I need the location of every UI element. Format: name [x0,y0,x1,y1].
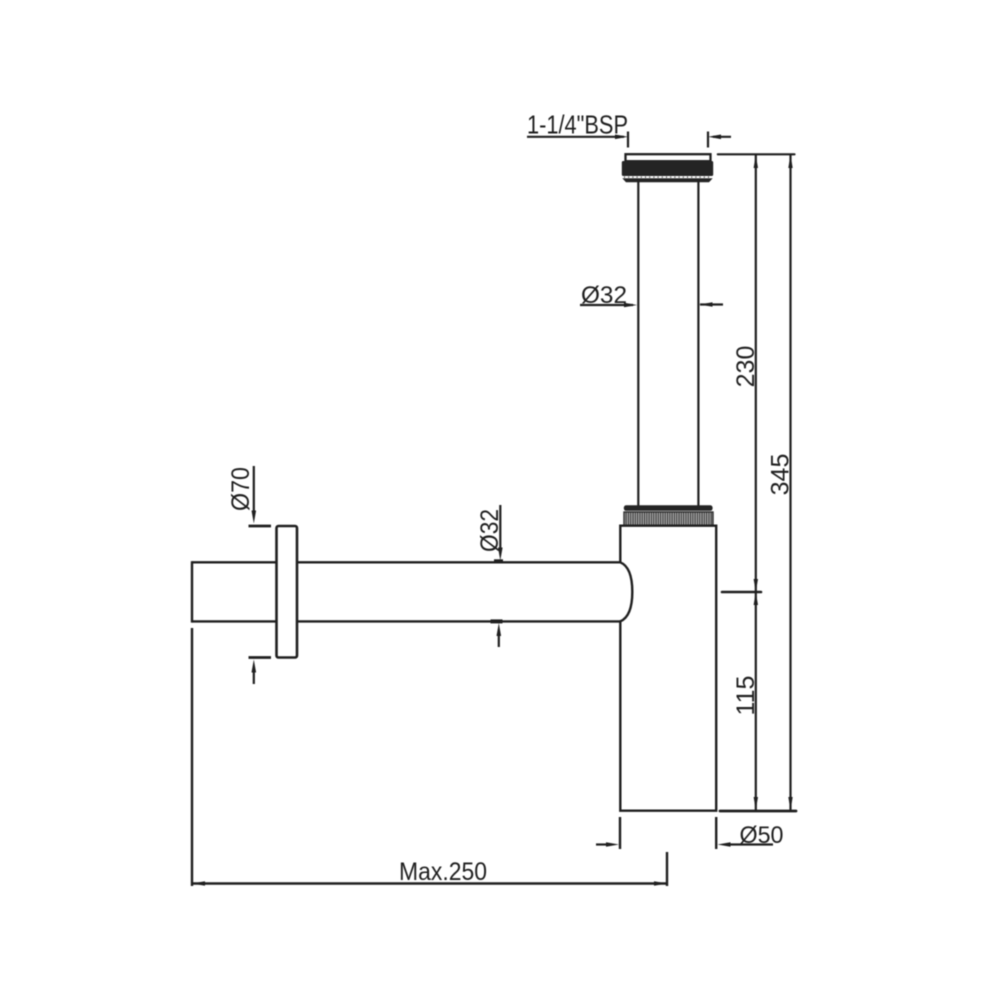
svg-text:230: 230 [732,346,760,388]
svg-text:345: 345 [767,454,795,496]
svg-text:115: 115 [732,676,760,716]
svg-text:Ø50: Ø50 [740,822,784,849]
svg-text:1-1/4"BSP: 1-1/4"BSP [527,110,628,140]
svg-text:Max.250: Max.250 [399,858,487,886]
svg-text:Ø70: Ø70 [227,467,255,511]
